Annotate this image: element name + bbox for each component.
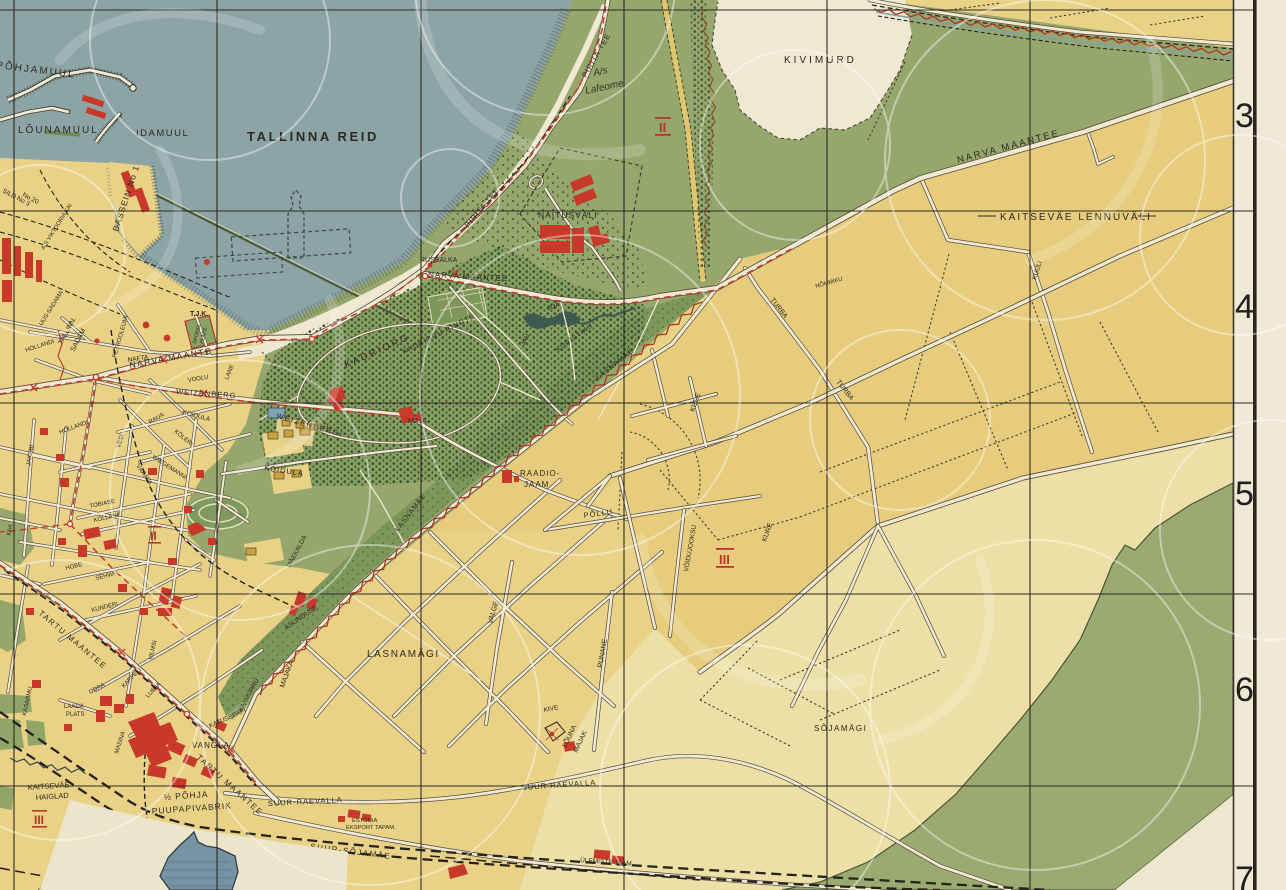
svg-text:II: II xyxy=(150,529,157,543)
svg-text:4: 4 xyxy=(1235,288,1254,326)
svg-text:VANGLA: VANGLA xyxy=(192,741,230,750)
svg-text:SÕJAMÄGI: SÕJAMÄGI xyxy=(814,724,867,733)
svg-text:IDAMUUL: IDAMUUL xyxy=(136,128,189,139)
svg-text:LAADA: LAADA xyxy=(64,704,84,710)
svg-text:3: 3 xyxy=(1235,97,1254,135)
svg-text:MAJA: MAJA xyxy=(408,418,427,425)
svg-text:EKSPORT TAPAM.: EKSPORT TAPAM. xyxy=(346,825,396,831)
svg-text:ESTONIA: ESTONIA xyxy=(352,818,377,824)
svg-text:II: II xyxy=(659,120,666,135)
svg-text:5: 5 xyxy=(1235,475,1254,513)
svg-text:LÕUNAMUUL: LÕUNAMUUL xyxy=(18,123,99,136)
svg-text:KAITSEVÄE LENNUVÄLI: KAITSEVÄE LENNUVÄLI xyxy=(1000,211,1152,223)
svg-text:7: 7 xyxy=(1235,860,1254,890)
svg-text:6: 6 xyxy=(1235,671,1254,709)
svg-text:PLATS: PLATS xyxy=(66,712,85,718)
svg-text:T.J.K.: T.J.K. xyxy=(190,311,208,318)
svg-text:TALLINNA REID: TALLINNA REID xyxy=(247,129,379,144)
svg-text:LASNAMÄGI: LASNAMÄGI xyxy=(367,648,440,660)
svg-text:RUSSALKA: RUSSALKA xyxy=(420,257,458,264)
svg-text:JAAM: JAAM xyxy=(524,480,549,489)
svg-text:III: III xyxy=(719,552,730,567)
svg-text:RAADIO-: RAADIO- xyxy=(520,469,560,478)
svg-text:III: III xyxy=(34,813,44,827)
